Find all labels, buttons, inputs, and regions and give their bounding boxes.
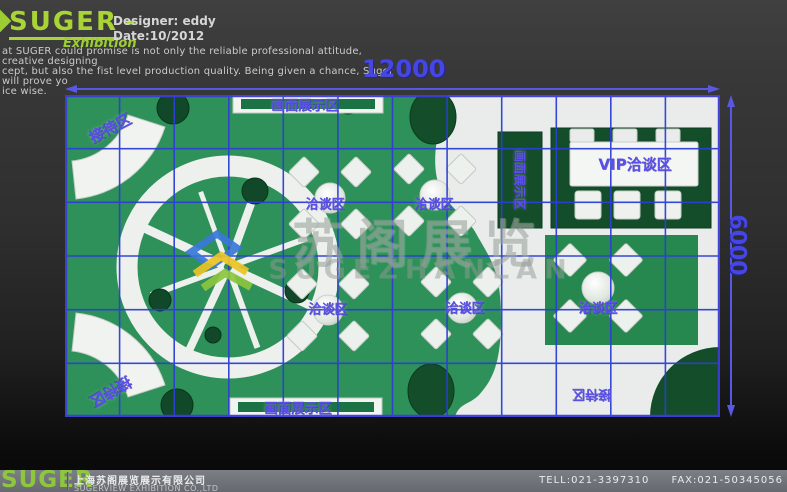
designer-label: Designer: eddy — [113, 14, 216, 29]
vip-chairs-top — [570, 129, 680, 142]
fax-label: FAX:021-50345056 — [672, 475, 784, 486]
label-reception-right: 接待区 — [572, 387, 611, 406]
design-meta: Designer: eddy Date:10/2012 — [113, 14, 216, 44]
planter-top-icon — [410, 95, 456, 144]
contact-info: TELL:021-3397310 FAX:021-50345056 — [539, 475, 783, 486]
height-dimension-label: 6000 — [725, 214, 750, 275]
width-dimension-line — [65, 83, 720, 95]
tel-label: TELL:021-3397310 — [539, 475, 649, 486]
label-vip: VIP洽谈区 — [598, 154, 671, 175]
label-display-wall-bottom: 画面展示区 — [264, 397, 332, 417]
label-negotiation-4: 洽谈区 — [445, 298, 484, 317]
watermark-logo-icon — [183, 226, 259, 292]
watermark-subtitle: SUGEZHANLAN — [268, 255, 573, 286]
booth-floor-plan: 接待区 接待区 画面展示区 画面展示区 画面展示区 VIP洽谈区 洽谈区 洽谈区… — [65, 95, 720, 417]
company-name-en: SUGERVIEW EXHIBITION CO.,LTD — [74, 484, 219, 492]
width-dimension-label: 12000 — [362, 55, 446, 83]
label-negotiation-5: 洽谈区 — [578, 298, 617, 317]
label-display-wall-top: 画面展示区 — [271, 94, 339, 114]
footer-divider — [67, 472, 68, 490]
label-negotiation-3: 洽谈区 — [308, 299, 347, 318]
label-display-wall-side: 画面展示区 — [512, 150, 529, 210]
design-sheet: SUGER- Exhibition Designer: eddy Date:10… — [0, 0, 787, 492]
footer-bar: SUGER 上海苏阁展览展示有限公司 SUGERVIEW EXHIBITION … — [0, 470, 787, 492]
promise-line-1: at SUGER could promise is not only the r… — [2, 47, 397, 67]
date-label: Date:10/2012 — [113, 29, 216, 44]
